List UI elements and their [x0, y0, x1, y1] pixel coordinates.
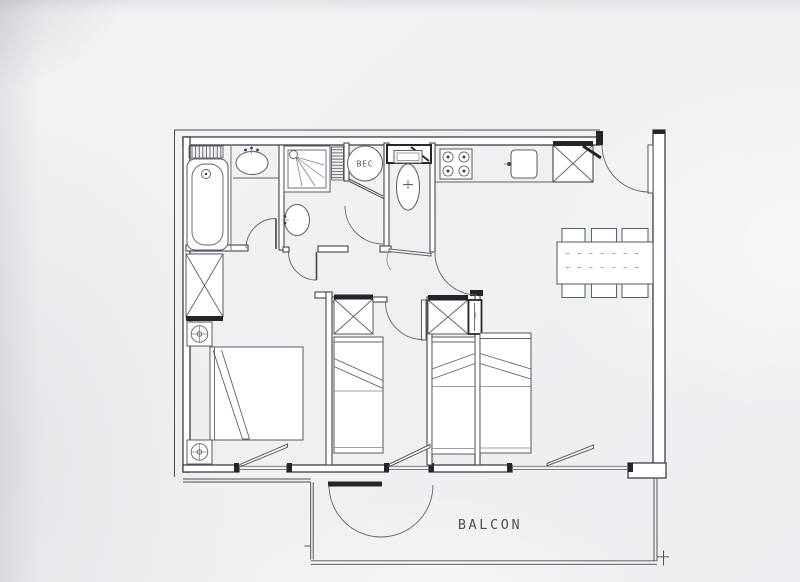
bedroom-2-door — [386, 300, 427, 340]
technical-duct — [553, 141, 601, 182]
closet-door-swing-arc — [345, 206, 383, 244]
entry-door — [602, 145, 653, 193]
bathroom-sink-icon — [233, 147, 279, 178]
french-window-leaf — [241, 444, 288, 466]
closet-door-leaf — [349, 179, 384, 199]
chair-icon — [622, 229, 648, 243]
entry-door-leaf — [648, 145, 653, 193]
wc-room — [387, 145, 431, 270]
entry-door-swing-arc — [602, 145, 649, 192]
terrace-edge-line — [183, 479, 311, 482]
wardrobe-icon — [334, 295, 373, 335]
chair-icon — [562, 229, 585, 243]
kitchen — [435, 141, 601, 182]
cabinet-icon — [469, 300, 482, 334]
balcony: BALCON — [183, 479, 669, 566]
living-room-door-swing-arc — [435, 253, 477, 295]
shower-tray-icon — [284, 146, 330, 192]
kitchen-sink-icon — [504, 150, 537, 178]
single-bed-icon — [432, 337, 475, 454]
bathtub-icon — [187, 159, 228, 250]
bedroom-2 — [334, 295, 430, 467]
french-window-leaf — [390, 445, 431, 467]
bathroom-door — [246, 219, 276, 250]
chair-icon — [622, 284, 648, 298]
nightstand-icon — [187, 322, 212, 346]
single-bed-icon — [334, 337, 383, 453]
wardrobe-icon — [186, 254, 223, 321]
water-heater-closet: BEC — [345, 146, 384, 244]
shower-sink-icon — [282, 205, 310, 236]
single-bed-icon — [480, 333, 531, 453]
wc-door — [387, 249, 431, 270]
chair-icon — [592, 284, 617, 298]
chair-icon — [562, 284, 585, 298]
stove-icon — [440, 149, 472, 179]
double-bed-icon — [210, 347, 303, 440]
nightstand-icon — [187, 440, 212, 464]
french-window-leaf — [547, 445, 594, 466]
chair-icon — [592, 229, 617, 243]
shower-room-door — [289, 252, 317, 280]
wardrobe-icon — [428, 295, 468, 334]
towel-radiator-hatch — [332, 147, 344, 180]
radiator-hatch — [189, 146, 223, 158]
cabin-room — [428, 295, 482, 454]
scanned-floor-plan-page: BEC — [0, 0, 800, 582]
living-room — [480, 229, 653, 466]
bathroom — [187, 146, 279, 250]
toilet-icon — [394, 151, 422, 211]
dining-table-icon — [557, 242, 653, 284]
balcony-door-swing-arc — [329, 485, 433, 537]
bedroom-1 — [186, 254, 303, 466]
dining-set — [557, 229, 653, 298]
balcony-label: BALCON — [458, 517, 522, 533]
balcony-door — [328, 482, 433, 538]
floor-plan-canvas: BEC — [0, 0, 800, 582]
water-heater-label: BEC — [357, 160, 374, 169]
shower-room — [282, 146, 344, 280]
entry-door-frame — [596, 131, 603, 145]
balcony-door-leaf — [328, 482, 382, 487]
